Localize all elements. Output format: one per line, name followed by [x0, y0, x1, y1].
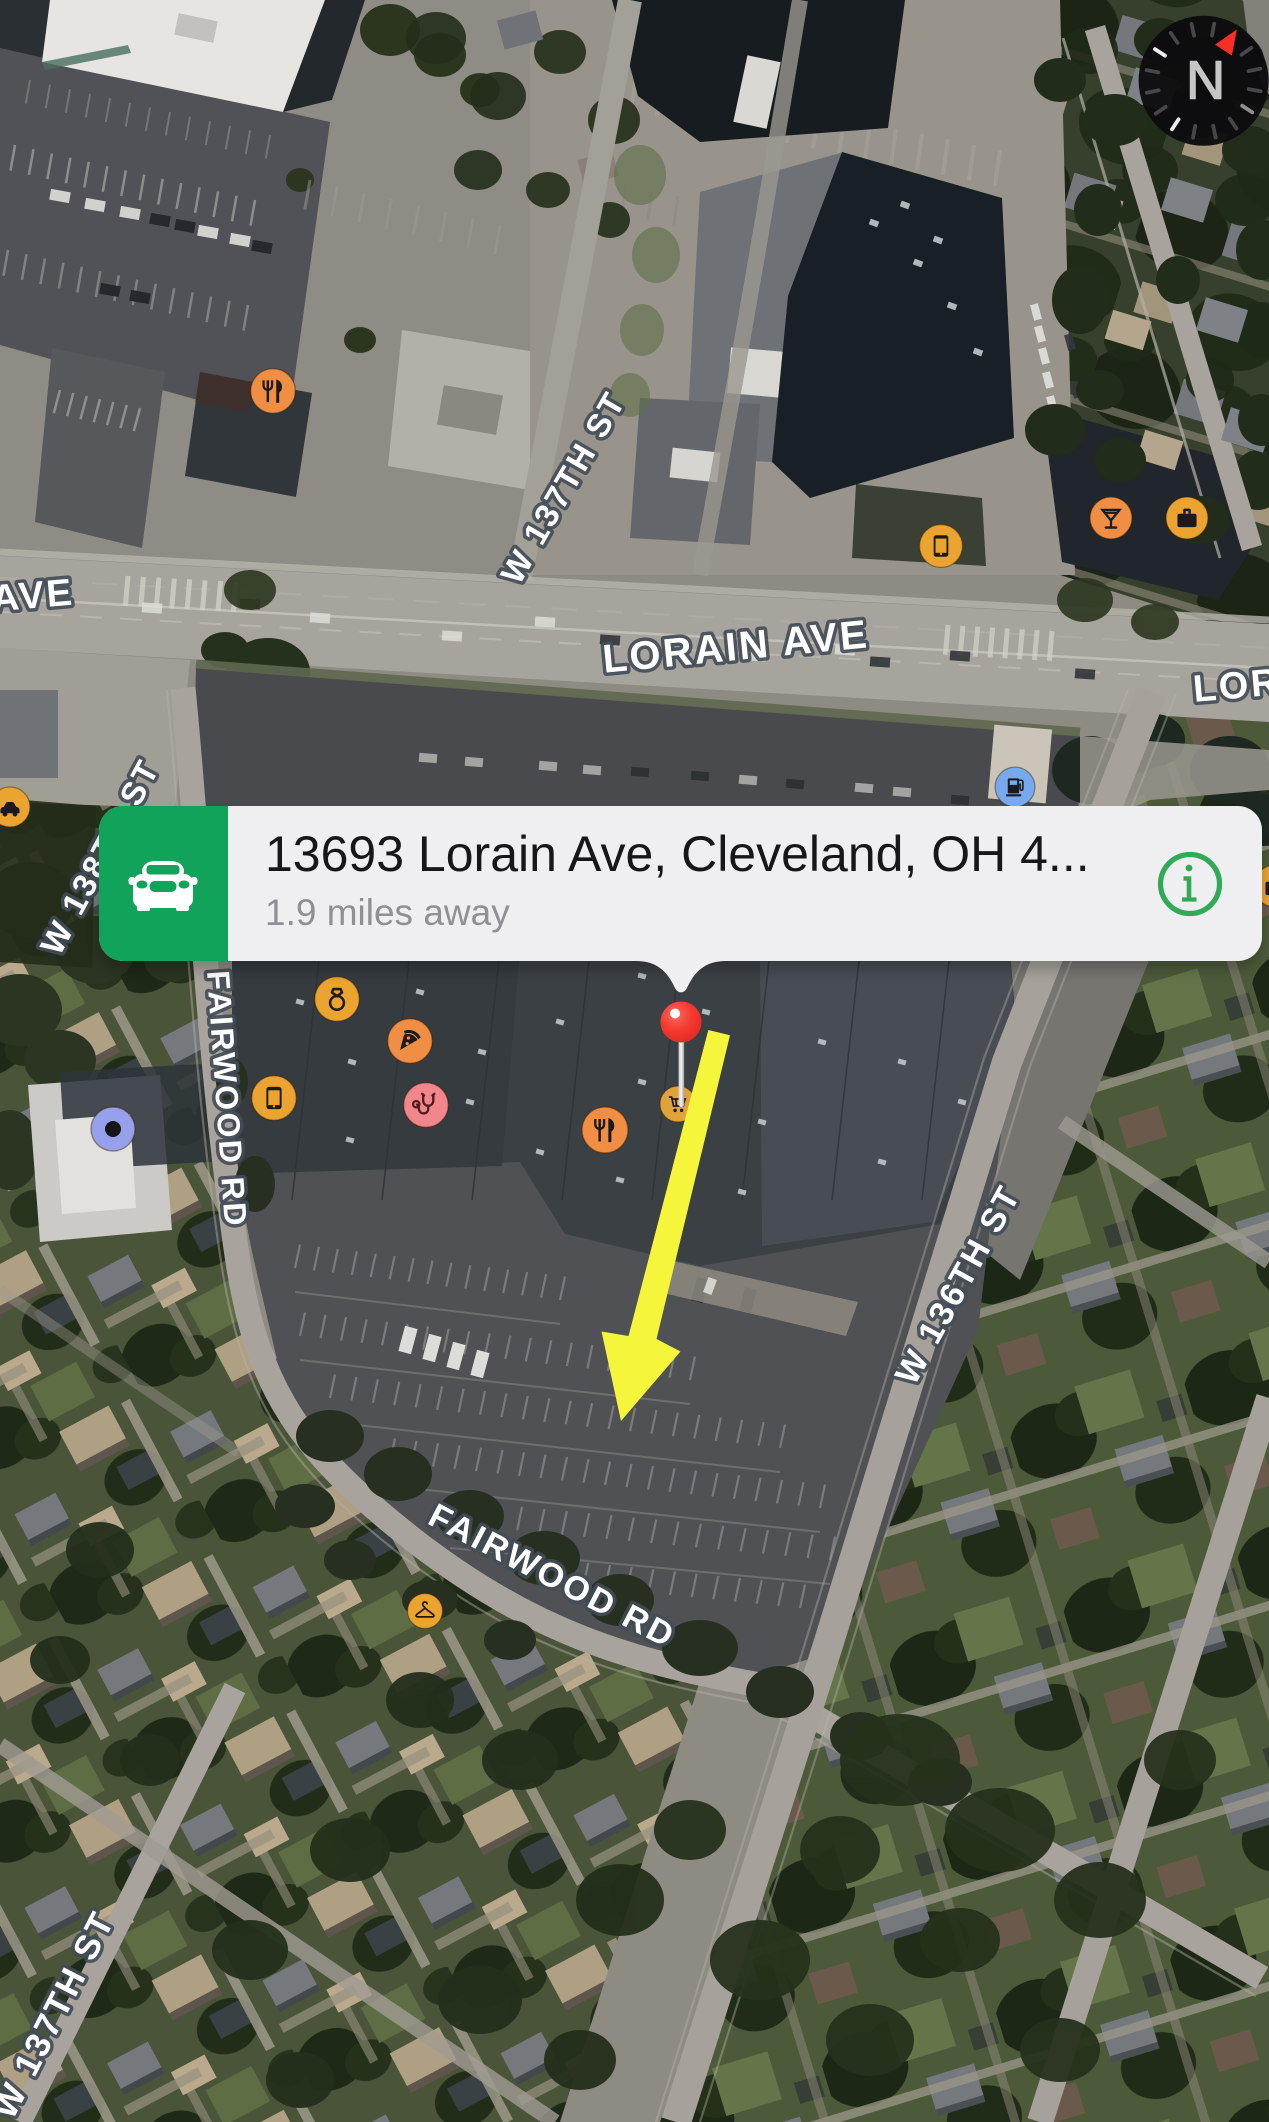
svg-text:LOR: LOR [1191, 661, 1269, 710]
svg-text:1.9 miles away: 1.9 miles away [265, 892, 510, 933]
svg-text:AVE: AVE [0, 572, 76, 621]
svg-text:N: N [1186, 51, 1225, 111]
svg-text:13693 Lorain Ave, Cleveland, O: 13693 Lorain Ave, Cleveland, OH 4... [265, 826, 1090, 882]
